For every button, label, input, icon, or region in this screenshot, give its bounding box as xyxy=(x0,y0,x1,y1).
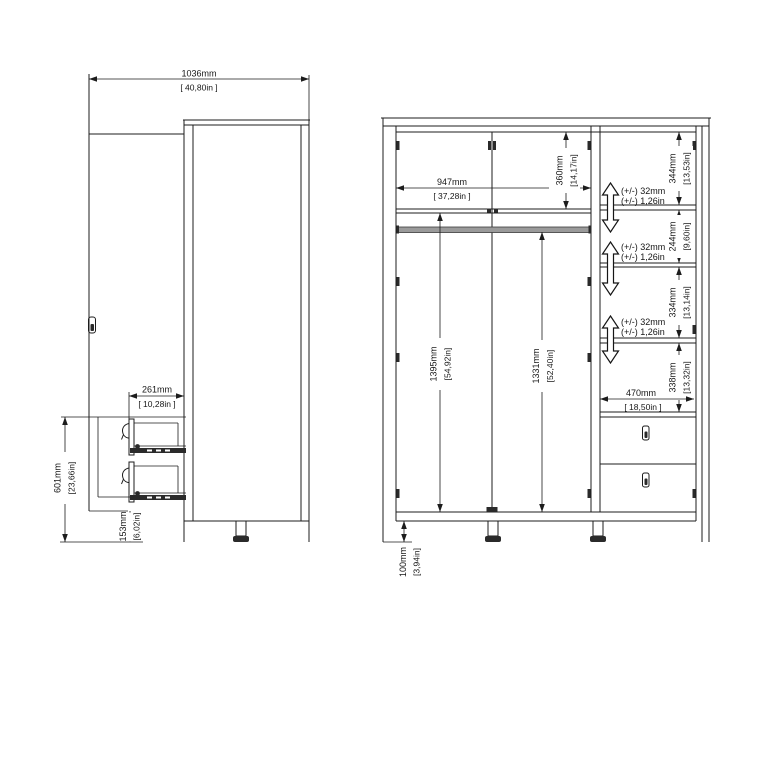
front-drawer-1-handle xyxy=(643,426,650,440)
arrowhead-down-icon xyxy=(563,201,569,209)
drawer-handle-grip xyxy=(645,479,648,486)
dim-344in-label: [13,53in] xyxy=(682,152,692,185)
leg xyxy=(593,521,603,536)
shelf-pin xyxy=(494,209,498,213)
vertical-dividers xyxy=(492,126,600,512)
dim-947in-label: [ 37,28in ] xyxy=(433,191,470,201)
rail-notch xyxy=(165,497,170,499)
arrowhead-left-icon xyxy=(89,76,97,82)
rail-notch xyxy=(147,497,152,499)
arrowhead-up-icon xyxy=(401,521,407,529)
leg xyxy=(488,521,498,536)
rail-notch xyxy=(156,497,161,499)
hinge-icon xyxy=(397,353,400,362)
double-arrow-icon xyxy=(603,316,619,363)
arrowhead-left-icon xyxy=(600,396,608,402)
arrowhead-right-icon xyxy=(176,393,184,399)
dim-261mm-label: 261mm xyxy=(142,385,172,395)
arrowhead-down-icon xyxy=(539,504,545,512)
wardrobe-dimension-diagram: 1036mm [ 40,80in ] 261mm [ 10,28in ] 601… xyxy=(0,0,768,768)
side-view: 1036mm [ 40,80in ] 261mm [ 10,28in ] 601… xyxy=(48,69,310,543)
arrowhead-right-icon xyxy=(301,76,309,82)
arrowhead-up-icon xyxy=(676,343,682,351)
dim-top-compartment: 360mm [14,17in] xyxy=(549,132,580,209)
dim-1036mm-label: 1036mm xyxy=(181,69,216,79)
dim-601in-label: [23,66in] xyxy=(67,462,77,495)
dim-right-compartment-2: 244mm [9,60in] xyxy=(662,210,693,263)
arrowhead-right-icon xyxy=(583,185,591,191)
front-view: 947mm [ 37,28in ] 360mm [14,17in] 1395mm… xyxy=(381,118,711,577)
dim-338in-label: [13,32in] xyxy=(682,361,692,394)
dim-right-compartment-1: 344mm [13,53in] xyxy=(662,132,693,205)
double-arrow-icon xyxy=(603,242,619,295)
arrowhead-up-icon xyxy=(539,232,545,240)
dim-line xyxy=(383,521,412,542)
arrowhead-down-icon xyxy=(676,404,682,412)
dim-100mm-label: 100mm xyxy=(398,547,408,577)
rail-screw xyxy=(135,491,140,496)
arrowhead-down-icon xyxy=(401,534,407,542)
hinge-icon xyxy=(397,141,400,150)
leg-foot xyxy=(485,536,501,542)
dim-153mm-label: 153mm xyxy=(118,511,128,541)
dim-334in-label: [13,14in] xyxy=(682,286,692,319)
hanging-rail xyxy=(397,226,592,234)
dim-overall-width-open: 1036mm [ 40,80in ] xyxy=(89,69,309,121)
dim-360mm-label: 360mm xyxy=(555,155,565,185)
door-handle xyxy=(89,317,96,333)
rail-bar xyxy=(397,227,590,233)
dim-1331mm-label: 1331mm xyxy=(531,348,541,383)
hinge-icon xyxy=(693,489,696,498)
hinge-icon xyxy=(588,353,591,362)
shelf-pin xyxy=(487,209,491,213)
hinge-icon xyxy=(693,325,696,334)
drawer-handle-grip xyxy=(645,432,648,439)
leg-foot xyxy=(590,536,606,542)
adjust-in-label: (+/-) 1,26in xyxy=(621,327,665,337)
hinge-icon xyxy=(397,277,400,286)
dim-right-compartment-4: 338mm [13,32in] xyxy=(662,343,693,412)
dim-470in-label: [ 18,50in ] xyxy=(624,402,661,412)
dim-right-compartment-3: 334mm [13,14in] xyxy=(662,267,693,338)
rail-notch xyxy=(156,450,161,452)
drawer-box-lines xyxy=(134,466,186,493)
arrowhead-up-icon xyxy=(563,132,569,140)
arrowhead-up-icon xyxy=(437,213,443,221)
rail-notch xyxy=(147,450,152,452)
arrowhead-up-icon xyxy=(676,132,682,140)
leg-foot xyxy=(233,536,249,542)
rail-bracket xyxy=(589,226,592,234)
hinge-icon xyxy=(588,141,591,150)
dim-left-clearance: 1395mm [54,92in] xyxy=(423,213,454,512)
dim-leg-height: 100mm [3,94in] xyxy=(383,521,422,577)
dim-947mm-label: 947mm xyxy=(437,177,467,187)
technical-drawing-svg: 1036mm [ 40,80in ] 261mm [ 10,28in ] 601… xyxy=(0,0,768,768)
hinge-icon xyxy=(397,489,400,498)
drawer-hook-handle-icon xyxy=(122,424,130,440)
arrowhead-left-icon xyxy=(129,393,137,399)
adjust-in-label: (+/-) 1,26in xyxy=(621,196,665,206)
arrowhead-up-icon xyxy=(62,417,68,425)
hinge-icon xyxy=(493,141,496,150)
dim-153in-label: [6,02in] xyxy=(132,513,142,541)
drawer-hook-handle-icon xyxy=(122,468,130,484)
dim-360in-label: [14,17in] xyxy=(569,154,579,187)
hinge-icon xyxy=(488,141,491,150)
adjust-mm-label: (+/-) 32mm xyxy=(621,186,665,196)
drawer-box-lines xyxy=(134,423,186,446)
dim-drawer-extension: 261mm [ 10,28in ] xyxy=(129,385,184,420)
dim-1036in-label: [ 40,80in ] xyxy=(180,83,217,93)
dim-244mm-label: 244mm xyxy=(668,221,678,251)
hinge-icon xyxy=(588,489,591,498)
arrowhead-up-icon xyxy=(676,267,682,275)
side-drawer-1 xyxy=(122,419,187,455)
dim-261in-label: [ 10,28in ] xyxy=(138,399,175,409)
dim-1331in-label: [52,40in] xyxy=(545,350,555,383)
double-arrow-icon xyxy=(603,183,619,232)
dim-bottom-clearance: 153mm [6,02in] xyxy=(114,511,143,542)
dim-344mm-label: 344mm xyxy=(668,153,678,183)
adjust-mm-label: (+/-) 32mm xyxy=(621,242,665,252)
dim-601mm-label: 601mm xyxy=(53,463,63,493)
rail-bracket xyxy=(397,226,400,234)
dim-244in-label: [9,60in] xyxy=(682,223,692,251)
dim-100in-label: [3,94in] xyxy=(412,548,422,576)
dim-338mm-label: 338mm xyxy=(668,362,678,392)
top-shelf-lines xyxy=(396,209,591,213)
dim-1395mm-label: 1395mm xyxy=(429,346,439,381)
side-panel-outline xyxy=(183,120,310,542)
divider-foot xyxy=(487,507,498,512)
dim-470mm-label: 470mm xyxy=(626,388,656,398)
adjust-mm-label: (+/-) 32mm xyxy=(621,317,665,327)
dim-1395in-label: [54,92in] xyxy=(443,348,453,381)
arrowhead-down-icon xyxy=(62,534,68,542)
door-handle-grip xyxy=(91,324,95,331)
side-leg xyxy=(233,521,249,542)
adjust-in-label: (+/-) 1,26in xyxy=(621,252,665,262)
hinge-icon xyxy=(588,277,591,286)
arrowhead-left-icon xyxy=(396,185,404,191)
rail-screw xyxy=(135,444,140,449)
arrowhead-down-icon xyxy=(437,504,443,512)
arrowhead-down-icon xyxy=(676,197,682,205)
front-drawer-2-handle xyxy=(643,473,650,487)
rail-notch xyxy=(165,450,170,452)
side-drawer-2 xyxy=(122,462,187,502)
dim-rail-clearance: 1331mm [52,40in] xyxy=(525,232,556,512)
arrowhead-down-icon xyxy=(676,330,682,338)
leg xyxy=(236,521,246,536)
dim-334mm-label: 334mm xyxy=(668,287,678,317)
